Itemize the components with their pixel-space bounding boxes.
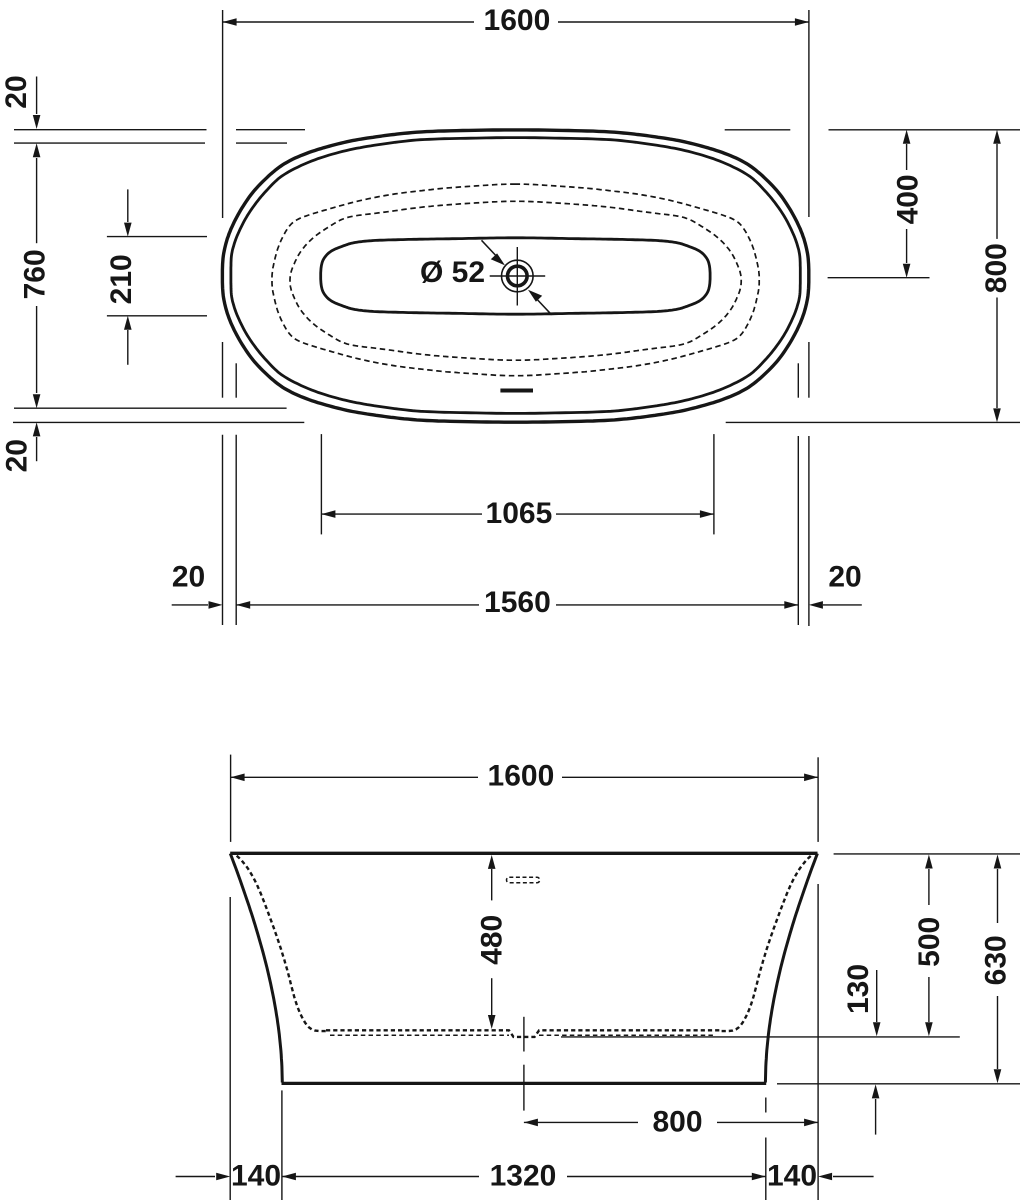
svg-text:130: 130 (842, 964, 875, 1014)
svg-text:800: 800 (652, 1105, 702, 1138)
svg-text:1065: 1065 (486, 497, 553, 530)
svg-text:1600: 1600 (484, 4, 551, 37)
svg-text:20: 20 (1, 439, 34, 472)
svg-text:1600: 1600 (488, 759, 555, 792)
svg-text:630: 630 (980, 935, 1013, 985)
svg-text:500: 500 (913, 917, 946, 967)
svg-text:20: 20 (828, 561, 861, 594)
svg-text:480: 480 (475, 915, 508, 965)
svg-text:210: 210 (105, 254, 138, 304)
svg-text:140: 140 (767, 1160, 817, 1193)
svg-text:800: 800 (980, 243, 1013, 293)
svg-text:Ø 52: Ø 52 (420, 256, 485, 289)
svg-text:760: 760 (19, 249, 52, 299)
svg-text:20: 20 (172, 561, 205, 594)
svg-text:400: 400 (891, 174, 924, 224)
svg-text:1320: 1320 (490, 1160, 557, 1193)
svg-text:20: 20 (0, 75, 33, 108)
svg-text:1560: 1560 (484, 586, 551, 619)
svg-text:140: 140 (231, 1160, 281, 1193)
